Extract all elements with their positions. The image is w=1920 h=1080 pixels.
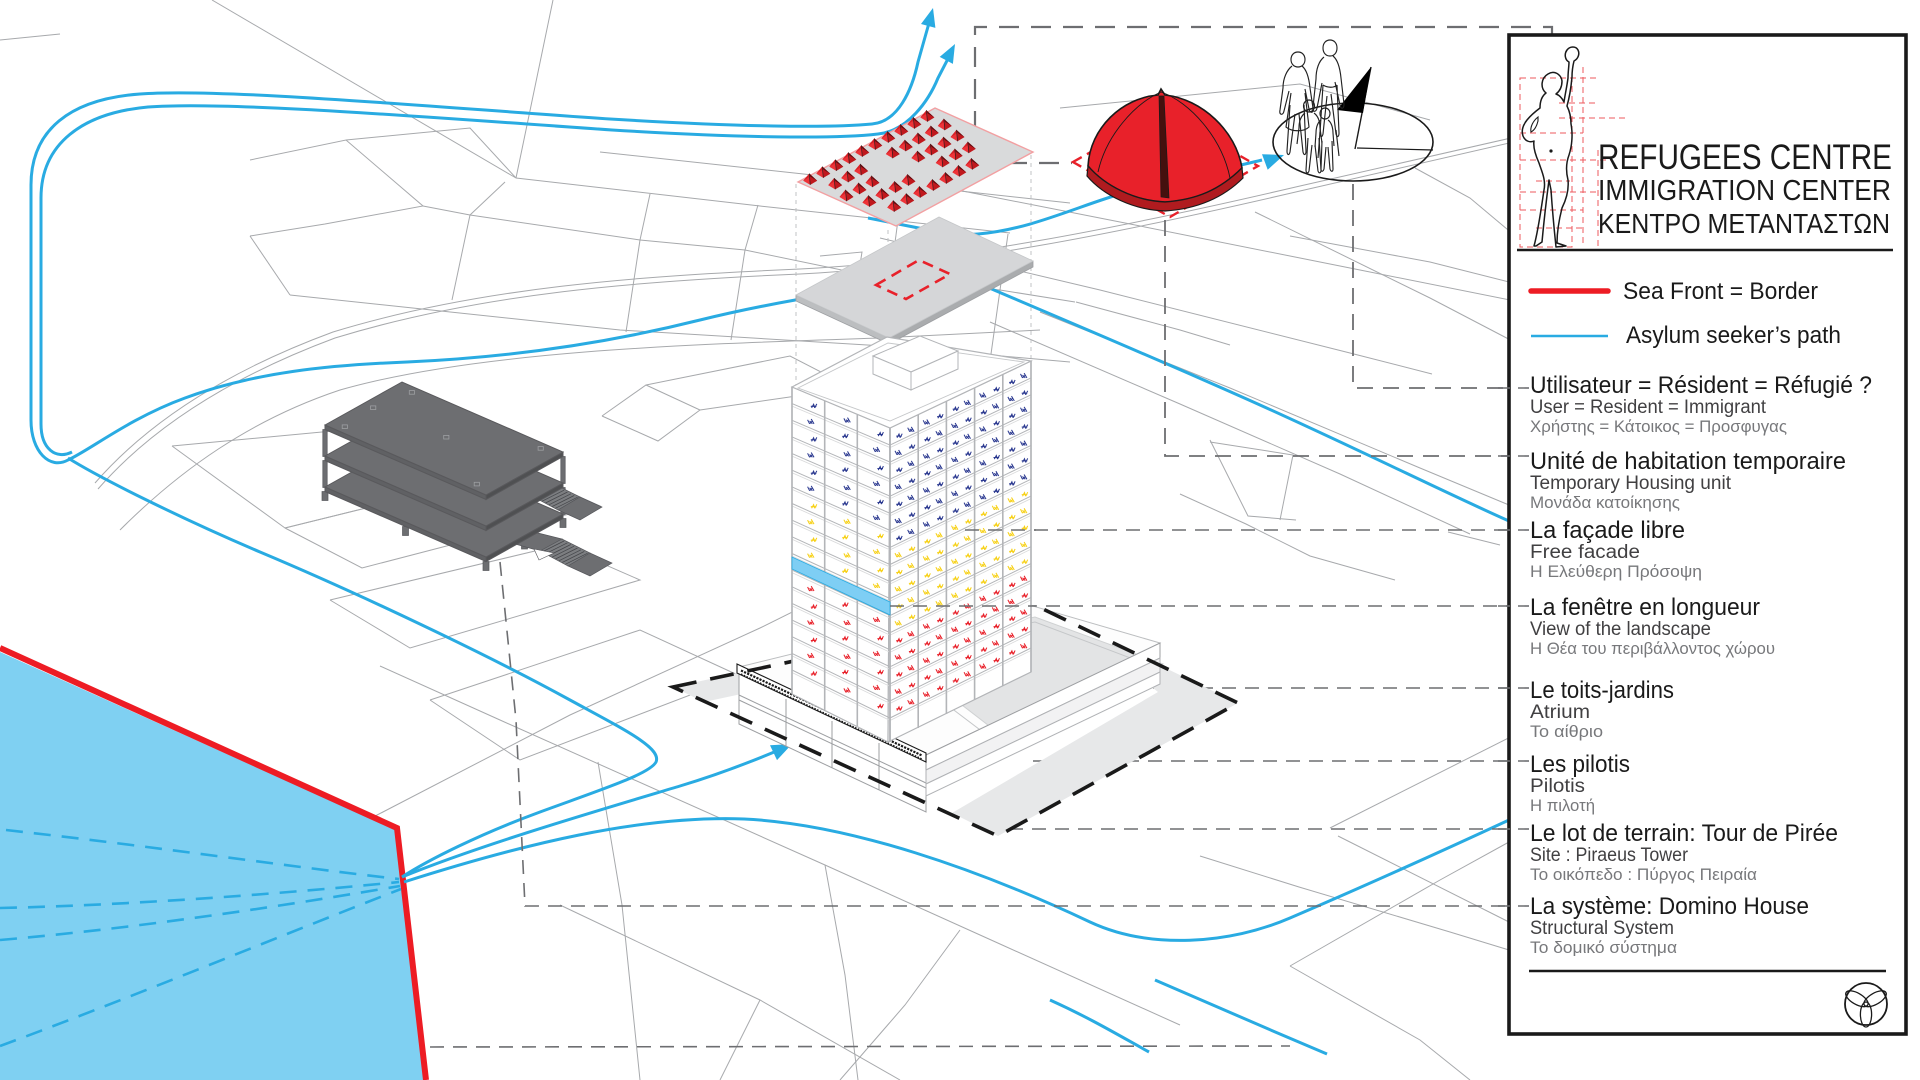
svg-text:REFUGEES CENTRE: REFUGEES CENTRE [1598,138,1892,177]
svg-text:IMMIGRATION CENTER: IMMIGRATION CENTER [1598,175,1891,207]
svg-text:Atrium: Atrium [1530,702,1590,723]
svg-text:Le lot de terrain: Tour de Pir: Le lot de terrain: Tour de Pirée [1530,820,1838,847]
svg-text:La système: Domino House: La système: Domino House [1530,893,1809,920]
svg-text:Structural System: Structural System [1530,918,1674,939]
svg-text:Το αίθριο: Το αίθριο [1530,722,1603,741]
svg-text:Temporary Housing unit: Temporary Housing unit [1530,473,1732,494]
svg-text:Το οικόπεδο : Πύργος Πειραία: Το οικόπεδο : Πύργος Πειραία [1530,865,1757,884]
svg-text:Pilotis: Pilotis [1530,776,1585,797]
svg-text:Site : Piraeus Tower: Site : Piraeus Tower [1530,845,1689,866]
svg-text:Η πιλοτή: Η πιλοτή [1530,796,1595,815]
svg-text:Asylum seeker’s path: Asylum seeker’s path [1626,322,1841,349]
svg-text:Sea Front = Border: Sea Front = Border [1623,278,1818,305]
svg-text:Utilisateur = Résident = Réfug: Utilisateur = Résident = Réfugié ? [1530,372,1872,399]
svg-text:ΚΕΝΤΡΟ ΜΕΤΑΝΤΑΣΤΩΝ: ΚΕΝΤΡΟ ΜΕΤΑΝΤΑΣΤΩΝ [1598,208,1890,239]
svg-text:View of the landscape: View of the landscape [1530,619,1711,640]
svg-text:La fenêtre en longueur: La fenêtre en longueur [1530,594,1760,621]
svg-text:User = Resident = Immigrant: User = Resident = Immigrant [1530,397,1767,418]
svg-text:Το δομικό σύστημα: Το δομικό σύστημα [1530,938,1677,957]
svg-text:Free facade: Free facade [1530,542,1640,563]
svg-text:Μονάδα κατοίκησης: Μονάδα κατοίκησης [1530,493,1680,512]
svg-text:Les pilotis: Les pilotis [1530,751,1630,778]
svg-text:Χρήστης = Κάτοικος = Προσφυγας: Χρήστης = Κάτοικος = Προσφυγας [1530,417,1787,436]
svg-text:Η Θέα του περιβάλλοντος χώρου: Η Θέα του περιβάλλοντος χώρου [1530,639,1775,658]
svg-text:Η Ελεύθερη Πρόσοψη: Η Ελεύθερη Πρόσοψη [1530,562,1702,581]
svg-text:Le toits-jardins: Le toits-jardins [1530,677,1674,704]
svg-text:La façade libre: La façade libre [1530,517,1685,544]
svg-text:Unité de habitation temporaire: Unité de habitation temporaire [1530,448,1846,475]
